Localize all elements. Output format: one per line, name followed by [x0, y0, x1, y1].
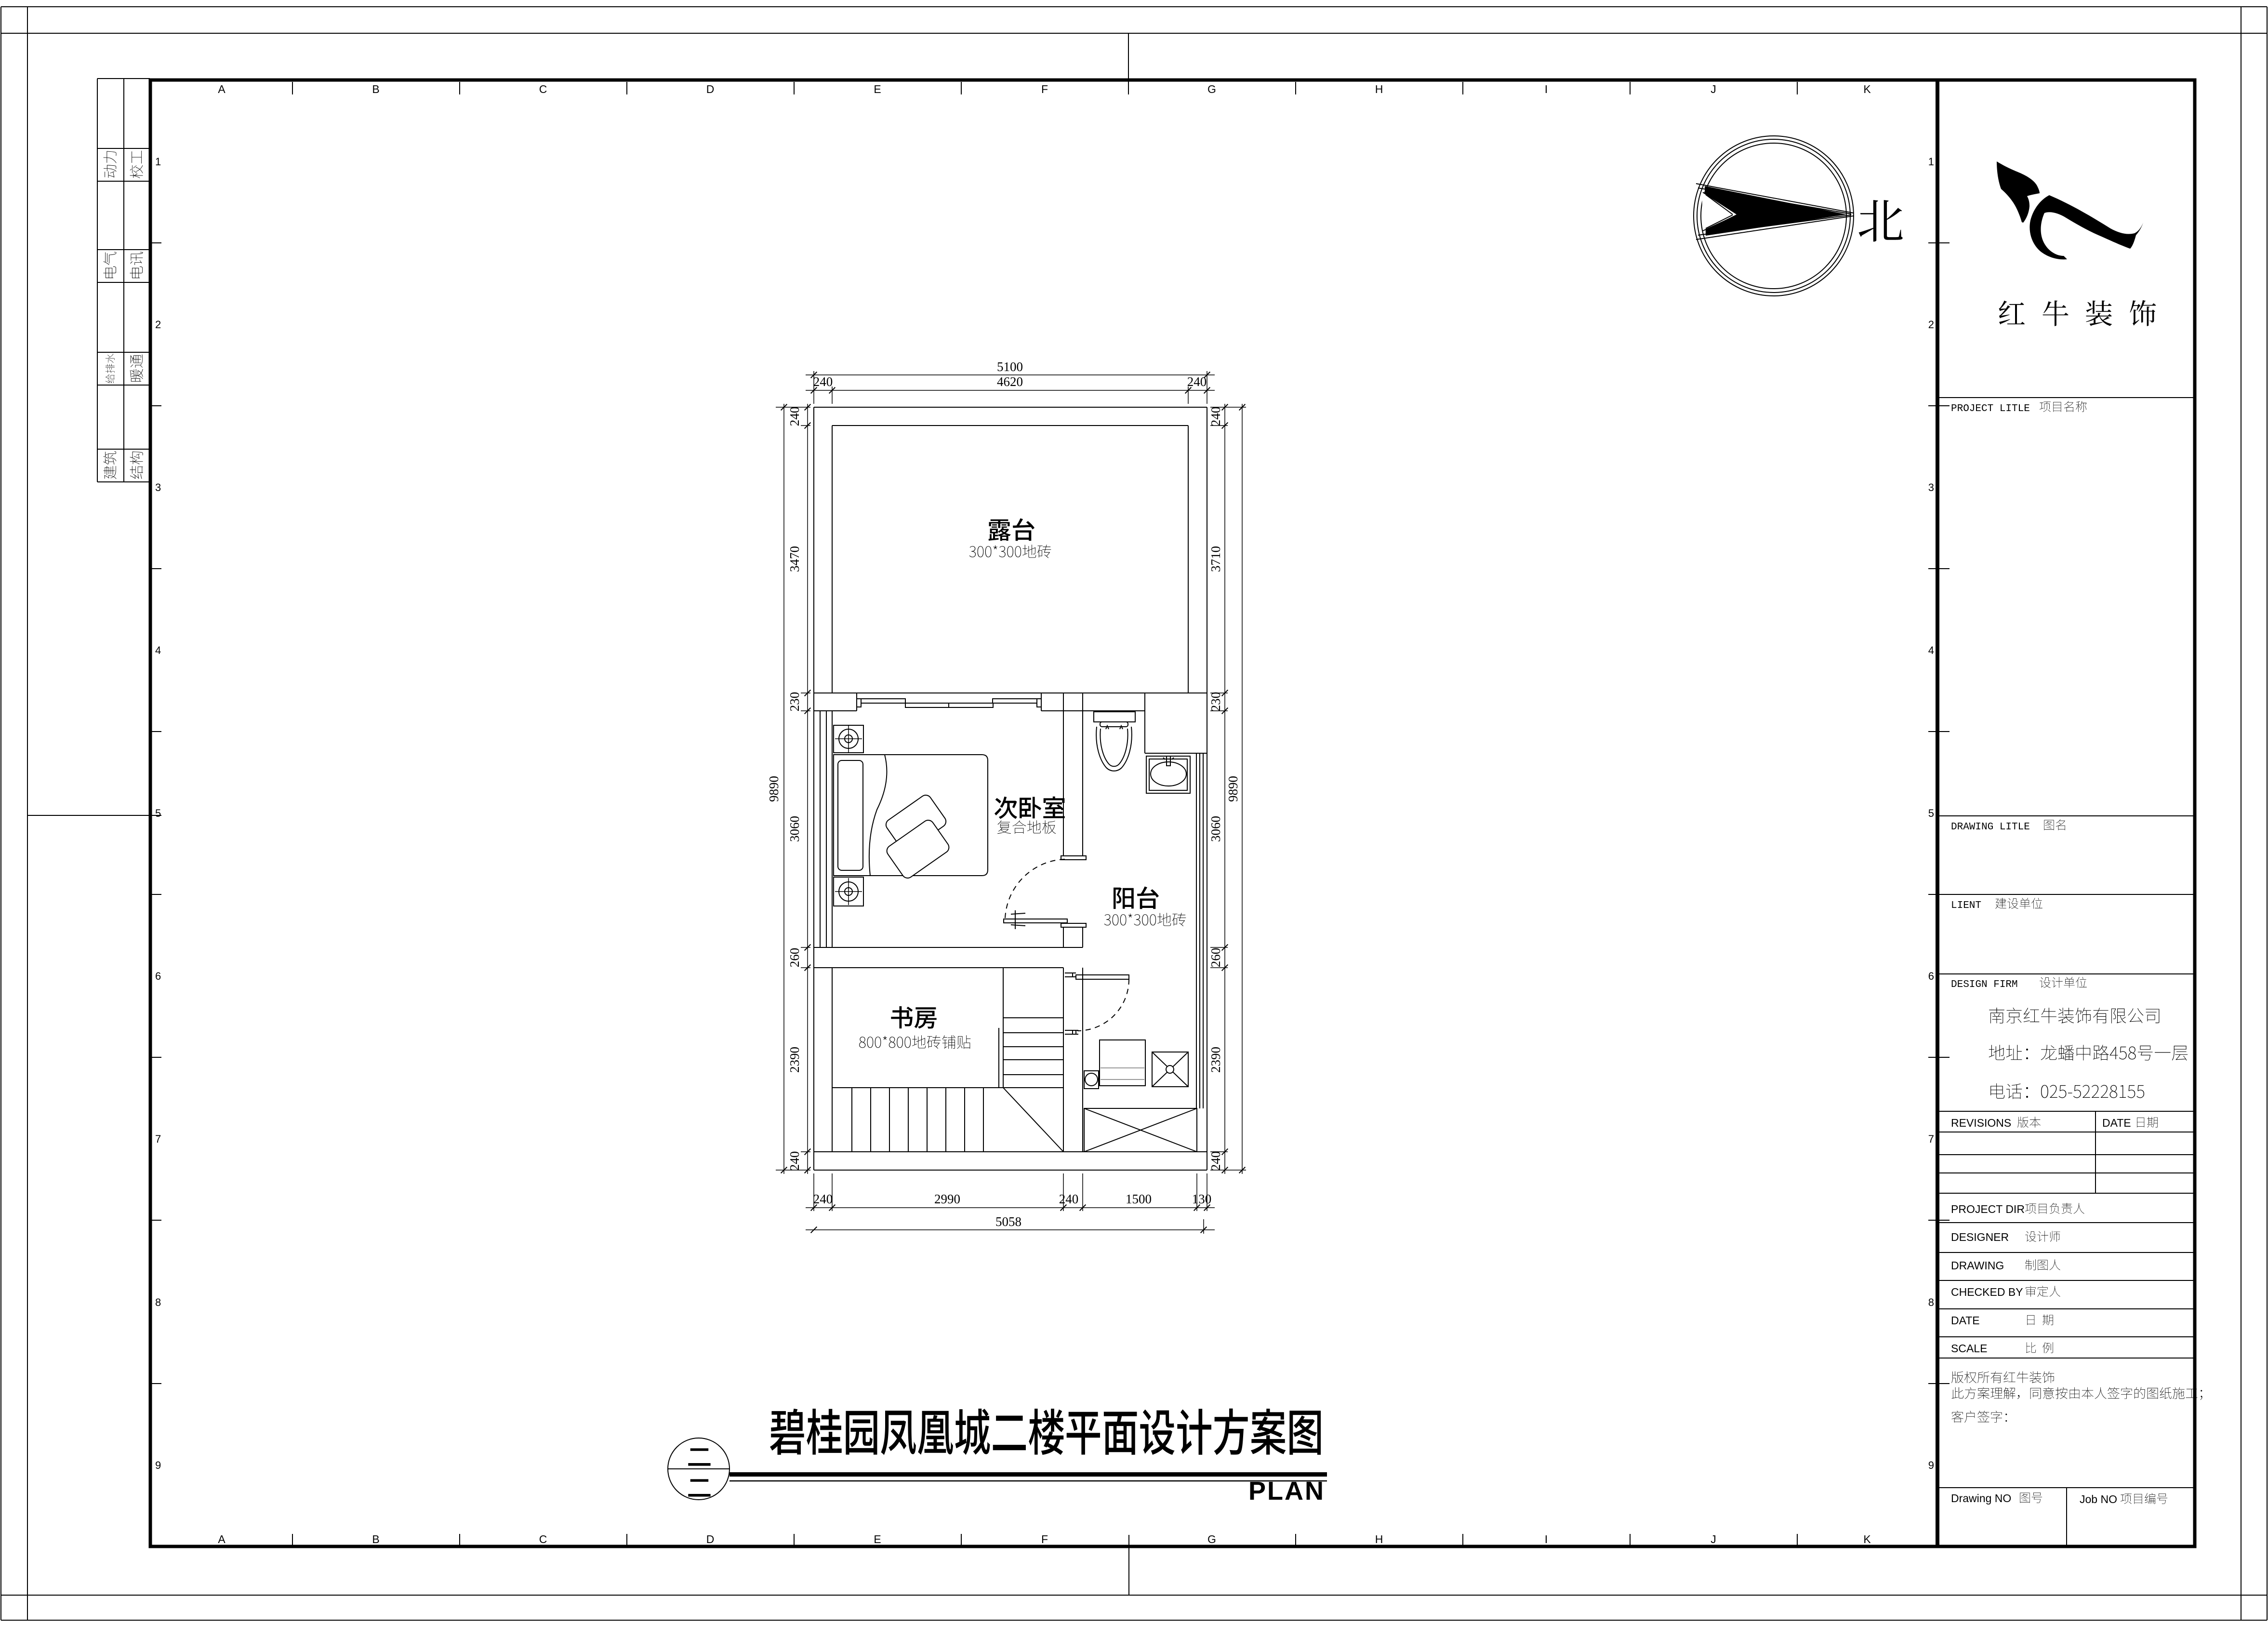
svg-text:240: 240 [787, 407, 802, 426]
svg-text:DATE: DATE [1951, 1314, 1980, 1327]
svg-text:230: 230 [787, 692, 802, 712]
svg-text:LIENT: LIENT [1951, 900, 1981, 911]
svg-text:A: A [218, 1533, 225, 1545]
svg-text:8: 8 [155, 1296, 161, 1308]
svg-text:1500: 1500 [1126, 1192, 1152, 1206]
svg-text:K: K [1863, 1533, 1871, 1545]
svg-text:3060: 3060 [787, 816, 802, 842]
svg-text:Job NO: Job NO [2080, 1493, 2117, 1505]
svg-text:PROJECT DIR: PROJECT DIR [1951, 1203, 2025, 1215]
svg-text:C: C [539, 83, 547, 95]
svg-text:B: B [372, 1533, 379, 1545]
svg-text:D: D [706, 1533, 715, 1545]
svg-text:I: I [1545, 83, 1548, 95]
svg-text:9: 9 [155, 1459, 161, 1471]
svg-text:2390: 2390 [1208, 1047, 1223, 1073]
svg-text:3: 3 [155, 481, 161, 493]
svg-text:5: 5 [1928, 807, 1934, 819]
svg-text:1: 1 [155, 156, 161, 168]
svg-text:8: 8 [1928, 1296, 1934, 1308]
svg-text:2990: 2990 [934, 1192, 960, 1206]
svg-text:240: 240 [813, 374, 833, 389]
svg-text:5058: 5058 [995, 1214, 1021, 1229]
svg-text:DESIGNER: DESIGNER [1951, 1231, 2009, 1243]
svg-text:2390: 2390 [787, 1047, 802, 1073]
svg-text:Drawing NO: Drawing NO [1951, 1492, 2011, 1505]
svg-text:130: 130 [1192, 1192, 1212, 1206]
svg-text:5: 5 [155, 807, 161, 819]
svg-text:240: 240 [1208, 1151, 1223, 1171]
svg-text:C: C [539, 1533, 547, 1545]
svg-text:2: 2 [155, 319, 161, 331]
svg-text:230: 230 [1208, 692, 1223, 712]
svg-text:E: E [874, 83, 881, 95]
svg-text:9890: 9890 [767, 776, 781, 802]
svg-text:260: 260 [787, 948, 802, 968]
svg-text:7: 7 [1928, 1133, 1934, 1145]
svg-text:DRAWING: DRAWING [1951, 1259, 2004, 1272]
svg-text:5100: 5100 [997, 360, 1023, 374]
svg-text:3470: 3470 [787, 546, 802, 572]
svg-text:H: H [1375, 83, 1383, 95]
svg-text:4: 4 [155, 644, 161, 656]
svg-text:9890: 9890 [1226, 776, 1240, 802]
svg-text:2: 2 [1928, 319, 1934, 331]
svg-text:240: 240 [1187, 374, 1207, 389]
svg-text:7: 7 [155, 1133, 161, 1145]
svg-text:DRAWING LITLE: DRAWING LITLE [1951, 822, 2030, 833]
svg-text:DESIGN FIRM: DESIGN FIRM [1951, 979, 2018, 990]
svg-text:F: F [1041, 1533, 1048, 1545]
svg-text:PLAN: PLAN [1248, 1477, 1325, 1505]
svg-text:6: 6 [155, 970, 161, 982]
svg-text:240: 240 [1208, 407, 1223, 426]
svg-text:B: B [372, 83, 379, 95]
svg-text:CHECKED BY: CHECKED BY [1951, 1286, 2023, 1298]
svg-text:REVISIONS: REVISIONS [1951, 1117, 2011, 1129]
svg-text:D: D [706, 83, 715, 95]
svg-text:4620: 4620 [997, 374, 1023, 389]
svg-text:H: H [1375, 1533, 1383, 1545]
svg-text:J: J [1711, 1533, 1716, 1545]
svg-text:A: A [218, 83, 225, 95]
svg-text:SCALE: SCALE [1951, 1342, 1987, 1355]
svg-text:3060: 3060 [1208, 816, 1223, 842]
svg-text:260: 260 [1208, 948, 1223, 968]
svg-text:G: G [1207, 83, 1216, 95]
svg-text:PROJECT LITLE: PROJECT LITLE [1951, 403, 2030, 414]
svg-text:6: 6 [1928, 970, 1934, 982]
svg-text:I: I [1545, 1533, 1548, 1545]
svg-text:K: K [1863, 83, 1871, 95]
svg-text:240: 240 [813, 1192, 833, 1206]
svg-text:F: F [1041, 83, 1048, 95]
svg-text:3: 3 [1928, 481, 1934, 493]
svg-text:240: 240 [1059, 1192, 1079, 1206]
svg-text:1: 1 [1928, 156, 1934, 168]
svg-text:J: J [1711, 83, 1716, 95]
svg-text:4: 4 [1928, 644, 1934, 656]
svg-text:3710: 3710 [1208, 546, 1223, 572]
svg-text:240: 240 [787, 1151, 802, 1171]
svg-text:DATE: DATE [2102, 1117, 2131, 1129]
svg-text:G: G [1207, 1533, 1216, 1545]
svg-text:E: E [874, 1533, 881, 1545]
svg-text:9: 9 [1928, 1459, 1934, 1471]
